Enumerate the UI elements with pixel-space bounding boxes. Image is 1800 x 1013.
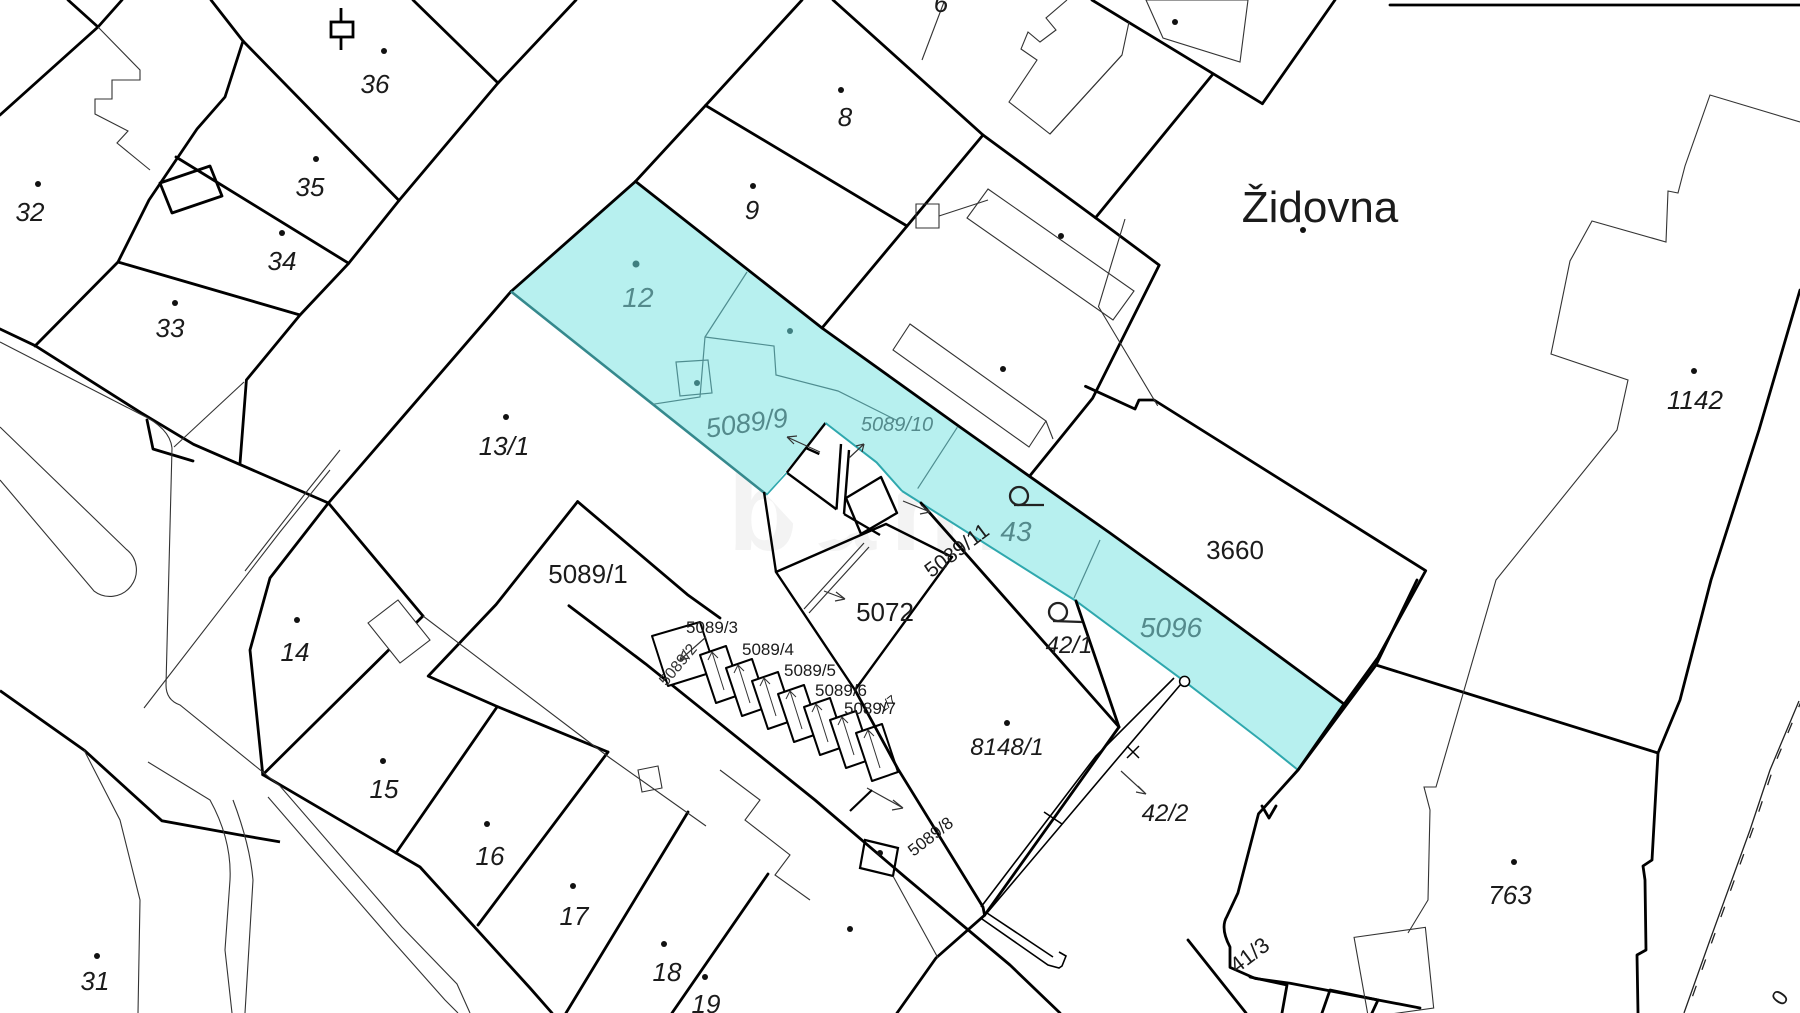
- svg-text:16: 16: [476, 841, 505, 871]
- svg-text:18: 18: [653, 957, 682, 987]
- svg-text:9: 9: [745, 195, 759, 225]
- svg-text:13/1: 13/1: [479, 431, 530, 461]
- svg-text:35: 35: [296, 172, 325, 202]
- svg-text:8148/1: 8148/1: [970, 734, 1043, 761]
- svg-text:5089/10: 5089/10: [861, 414, 933, 436]
- svg-text:5089/4: 5089/4: [742, 640, 794, 659]
- svg-text:42/2: 42/2: [1142, 800, 1189, 827]
- svg-text:17: 17: [560, 901, 590, 931]
- svg-text:5096: 5096: [1140, 612, 1203, 643]
- svg-text:33: 33: [156, 313, 185, 343]
- svg-text:31: 31: [81, 966, 110, 996]
- svg-text:5089/6: 5089/6: [815, 681, 867, 700]
- svg-text:19: 19: [692, 989, 721, 1013]
- svg-text:34: 34: [268, 246, 297, 276]
- svg-text:8: 8: [838, 102, 853, 132]
- svg-text:36: 36: [361, 69, 390, 99]
- svg-text:3660: 3660: [1206, 535, 1264, 565]
- svg-text:5089/5: 5089/5: [784, 661, 836, 680]
- svg-text:5089/3: 5089/3: [686, 618, 738, 637]
- svg-text:5089/1: 5089/1: [548, 559, 628, 589]
- svg-text:Židovna: Židovna: [1242, 183, 1399, 232]
- svg-text:6: 6: [934, 0, 949, 18]
- svg-text:42/1: 42/1: [1046, 632, 1093, 659]
- svg-text:1142: 1142: [1667, 385, 1723, 415]
- svg-text:5072: 5072: [856, 597, 914, 627]
- svg-text:43: 43: [1000, 516, 1032, 547]
- svg-text:15: 15: [370, 774, 399, 804]
- svg-text:14: 14: [281, 637, 310, 667]
- svg-text:32: 32: [16, 197, 45, 227]
- svg-text:12: 12: [622, 282, 654, 313]
- svg-text:763: 763: [1488, 880, 1532, 910]
